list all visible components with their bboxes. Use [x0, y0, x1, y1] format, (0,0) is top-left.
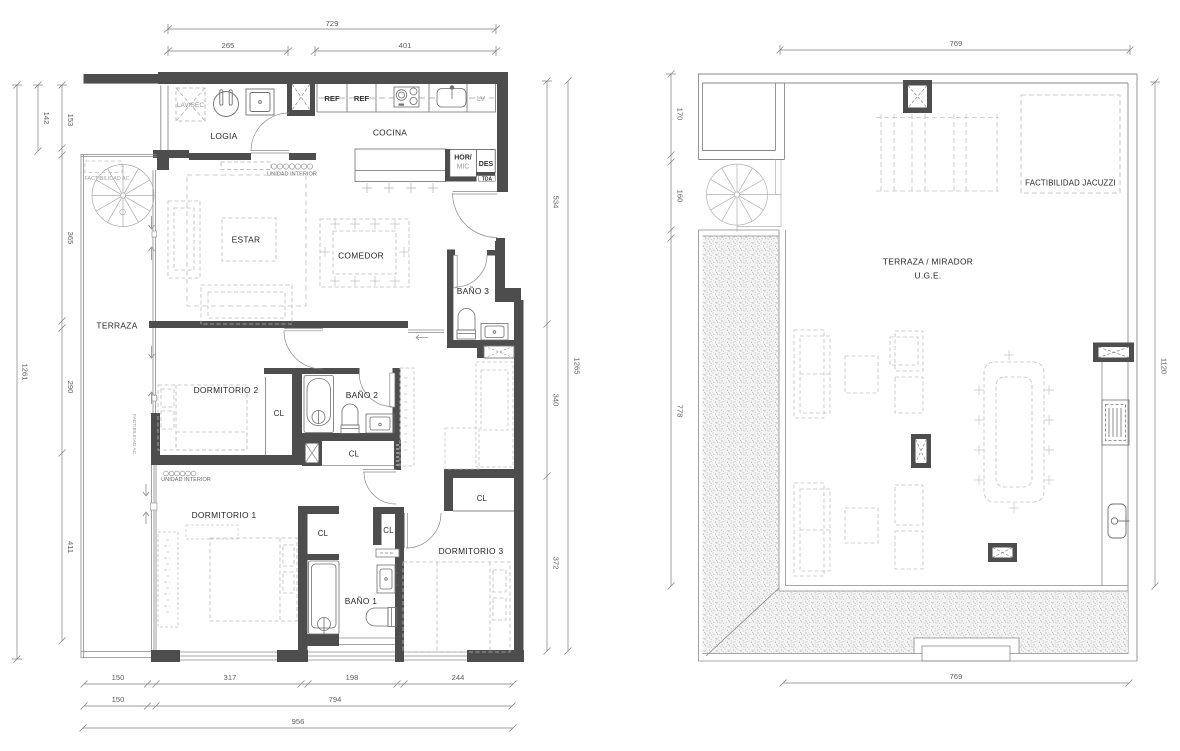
- svg-text:UNIDAD INTERIOR: UNIDAD INTERIOR: [161, 477, 211, 483]
- svg-text:BAÑO 2: BAÑO 2: [346, 390, 379, 400]
- svg-text:1120: 1120: [1160, 358, 1169, 374]
- svg-text:244: 244: [452, 673, 465, 682]
- svg-text:LV: LV: [477, 96, 485, 103]
- svg-text:REF: REF: [354, 94, 370, 103]
- svg-text:FACTIBILIDAD JACUZZI: FACTIBILIDAD JACUZZI: [1025, 179, 1116, 188]
- svg-text:CL: CL: [477, 494, 488, 503]
- svg-text:729: 729: [326, 19, 339, 28]
- svg-text:198: 198: [346, 673, 359, 682]
- svg-text:794: 794: [329, 695, 342, 704]
- svg-text:COCINA: COCINA: [373, 128, 407, 138]
- svg-text:TERRAZA: TERRAZA: [96, 321, 137, 331]
- svg-text:U.G.E.: U.G.E.: [915, 271, 942, 281]
- svg-text:778: 778: [676, 405, 685, 418]
- svg-text:LAV/SEC: LAV/SEC: [177, 102, 205, 109]
- svg-text:150: 150: [112, 695, 125, 704]
- svg-text:317: 317: [224, 673, 237, 682]
- svg-text:265: 265: [222, 41, 235, 50]
- svg-text:956: 956: [292, 717, 305, 726]
- svg-text:DORMITORIO 3: DORMITORIO 3: [439, 546, 504, 556]
- svg-text:1265: 1265: [573, 358, 582, 375]
- svg-text:DORMITORIO 1: DORMITORIO 1: [192, 510, 257, 520]
- svg-text:BAÑO 1: BAÑO 1: [345, 596, 378, 606]
- svg-text:HOR/: HOR/: [454, 155, 472, 162]
- svg-text:TERRAZA / MIRADOR: TERRAZA / MIRADOR: [883, 257, 973, 267]
- svg-text:769: 769: [950, 672, 963, 681]
- svg-text:411: 411: [66, 541, 75, 553]
- svg-text:BAÑO 3: BAÑO 3: [457, 286, 490, 296]
- svg-text:DES: DES: [479, 161, 494, 168]
- svg-text:365: 365: [66, 232, 75, 245]
- svg-text:COMEDOR: COMEDOR: [338, 251, 384, 261]
- svg-text:ESTAR: ESTAR: [232, 235, 261, 245]
- svg-text:REF: REF: [324, 94, 340, 103]
- svg-text:UNIDAD INTERIOR: UNIDAD INTERIOR: [267, 172, 317, 178]
- svg-text:142: 142: [42, 112, 51, 125]
- svg-text:769: 769: [950, 39, 963, 48]
- svg-text:CL: CL: [383, 526, 394, 535]
- svg-text:CL: CL: [274, 409, 285, 418]
- svg-text:534: 534: [552, 196, 561, 209]
- svg-text:401: 401: [399, 41, 412, 50]
- svg-text:1261: 1261: [21, 364, 30, 381]
- svg-text:CL: CL: [349, 450, 360, 459]
- svg-text:150: 150: [112, 673, 125, 682]
- svg-text:170: 170: [676, 108, 685, 121]
- svg-text:160: 160: [676, 190, 685, 203]
- svg-text:290: 290: [66, 381, 75, 394]
- svg-text:DORMITORIO 2: DORMITORIO 2: [194, 385, 259, 395]
- svg-text:153: 153: [66, 114, 75, 127]
- svg-text:372: 372: [552, 557, 561, 570]
- svg-text:MIC: MIC: [457, 164, 470, 171]
- svg-text:FACTIBILIDAD AC: FACTIBILIDAD AC: [131, 414, 137, 455]
- svg-text:LOGIA: LOGIA: [210, 131, 237, 141]
- svg-text:CL: CL: [318, 529, 329, 538]
- svg-text:340: 340: [552, 394, 561, 407]
- svg-text:TDA: TDA: [482, 177, 493, 183]
